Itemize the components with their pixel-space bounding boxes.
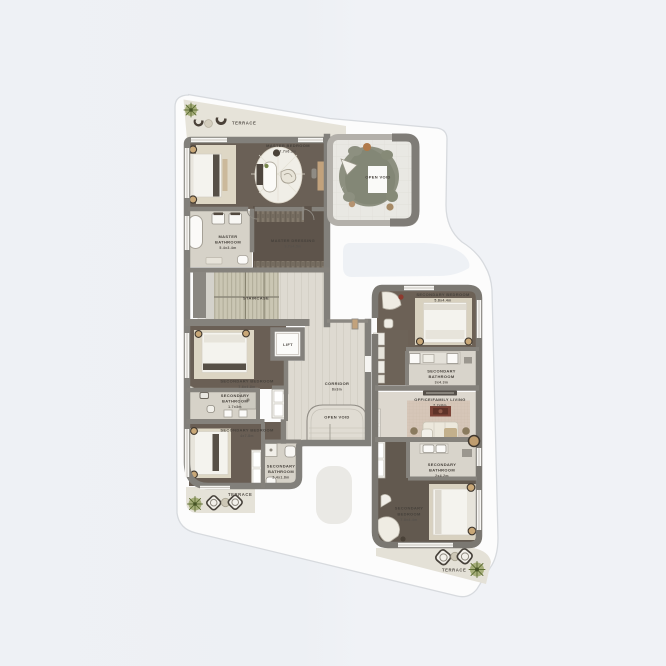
- svg-text:7.2x6m: 7.2x6m: [433, 404, 447, 408]
- svg-text:2x4.2m: 2x4.2m: [435, 474, 449, 478]
- svg-text:SECONDARY BEDROOM: SECONDARY BEDROOM: [416, 292, 470, 297]
- svg-text:BATHROOM: BATHROOM: [268, 469, 294, 474]
- svg-text:BATHROOM: BATHROOM: [428, 374, 454, 379]
- svg-text:MASTER: MASTER: [219, 234, 238, 239]
- svg-text:BEDROOM: BEDROOM: [397, 512, 421, 517]
- svg-text:BATHROOM: BATHROOM: [222, 399, 248, 404]
- svg-text:STAIRCASE: STAIRCASE: [243, 296, 269, 301]
- svg-text:3.7x4.5m: 3.7x4.5m: [284, 245, 301, 249]
- svg-text:SECONDARY: SECONDARY: [267, 464, 296, 469]
- svg-text:SECONDARY: SECONDARY: [221, 393, 250, 398]
- svg-text:1.7x3m: 1.7x3m: [228, 405, 242, 409]
- svg-text:5.4x3.4m: 5.4x3.4m: [219, 246, 236, 250]
- svg-text:7.6x4.8m: 7.6x4.8m: [238, 385, 255, 389]
- svg-text:OFFICE/FAMILY LIVING: OFFICE/FAMILY LIVING: [414, 397, 465, 402]
- svg-text:SECONDARY: SECONDARY: [395, 506, 424, 511]
- svg-text:4x7.8m: 4x7.8m: [240, 434, 254, 438]
- svg-text:2.4x1.8m: 2.4x1.8m: [272, 476, 289, 480]
- svg-text:SECONDARY: SECONDARY: [428, 462, 457, 467]
- svg-text:OPEN VOID: OPEN VOID: [324, 415, 349, 420]
- svg-text:MASTER BEDROOM: MASTER BEDROOM: [266, 143, 310, 148]
- svg-text:OPEN VOID: OPEN VOID: [365, 175, 390, 180]
- svg-text:CORRIDOR: CORRIDOR: [325, 381, 350, 386]
- svg-text:LIFT: LIFT: [283, 342, 293, 347]
- svg-text:TERRACE: TERRACE: [228, 492, 252, 497]
- svg-text:SECONDARY BEDROOM: SECONDARY BEDROOM: [220, 379, 274, 384]
- svg-text:TERRACE: TERRACE: [232, 121, 256, 126]
- svg-text:5.8x4.4m: 5.8x4.4m: [434, 299, 451, 303]
- svg-text:MASTER DRESSING: MASTER DRESSING: [271, 238, 315, 243]
- svg-text:7.7x6.3m: 7.7x6.3m: [279, 150, 296, 154]
- svg-text:3x4.3m: 3x4.3m: [435, 381, 449, 385]
- svg-text:BATHROOM: BATHROOM: [215, 240, 241, 245]
- svg-text:SECONDARY: SECONDARY: [427, 369, 456, 374]
- svg-text:SECONDARY BEDROOM: SECONDARY BEDROOM: [220, 428, 274, 433]
- svg-text:TERRACE: TERRACE: [442, 568, 466, 573]
- svg-text:7.8x4.4m: 7.8x4.4m: [400, 518, 417, 522]
- svg-text:8x3m: 8x3m: [332, 388, 342, 392]
- svg-text:BATHROOM: BATHROOM: [429, 468, 455, 473]
